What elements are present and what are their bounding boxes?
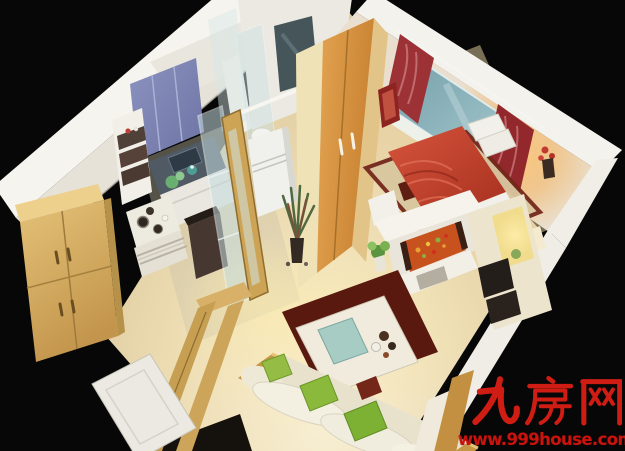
red-wall-art	[378, 82, 400, 128]
shelf-green-item	[511, 249, 521, 259]
apartment-scene-graphic	[0, 0, 625, 451]
apartment-render: 九房网 www.999house.com	[0, 0, 625, 451]
